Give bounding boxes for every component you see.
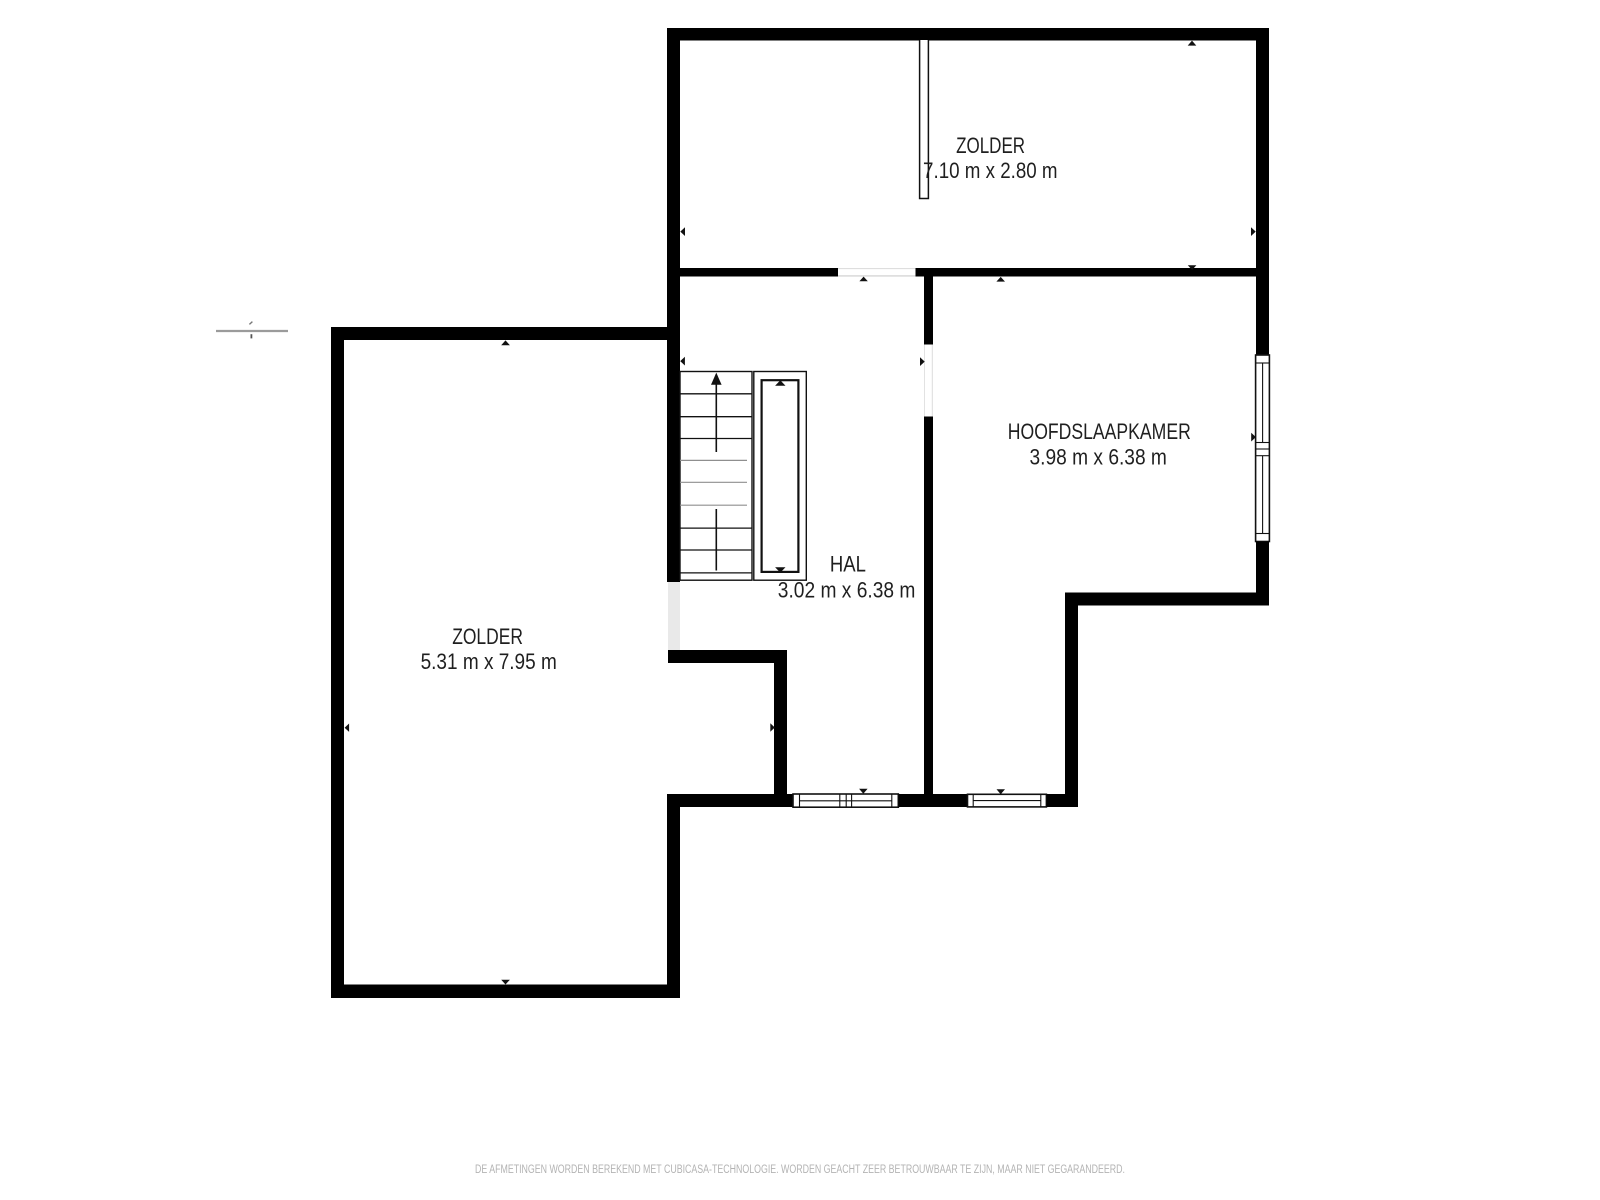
svg-text:HAL: HAL: [830, 551, 866, 576]
svg-text:ZOLDER: ZOLDER: [452, 624, 523, 649]
svg-text:5.31 m x 7.95 m: 5.31 m x 7.95 m: [421, 649, 557, 674]
svg-text:HOOFDSLAAPKAMER: HOOFDSLAAPKAMER: [1008, 419, 1191, 444]
svg-text:7.10 m x 2.80 m: 7.10 m x 2.80 m: [923, 158, 1058, 183]
svg-text:ZOLDER: ZOLDER: [956, 133, 1025, 158]
svg-text:DE AFMETINGEN WORDEN BEREKEND: DE AFMETINGEN WORDEN BEREKEND MET CUBICA…: [475, 1162, 1125, 1176]
svg-text:3.02 m x 6.38 m: 3.02 m x 6.38 m: [778, 578, 916, 603]
svg-text:3.98 m x 6.38 m: 3.98 m x 6.38 m: [1030, 445, 1167, 470]
